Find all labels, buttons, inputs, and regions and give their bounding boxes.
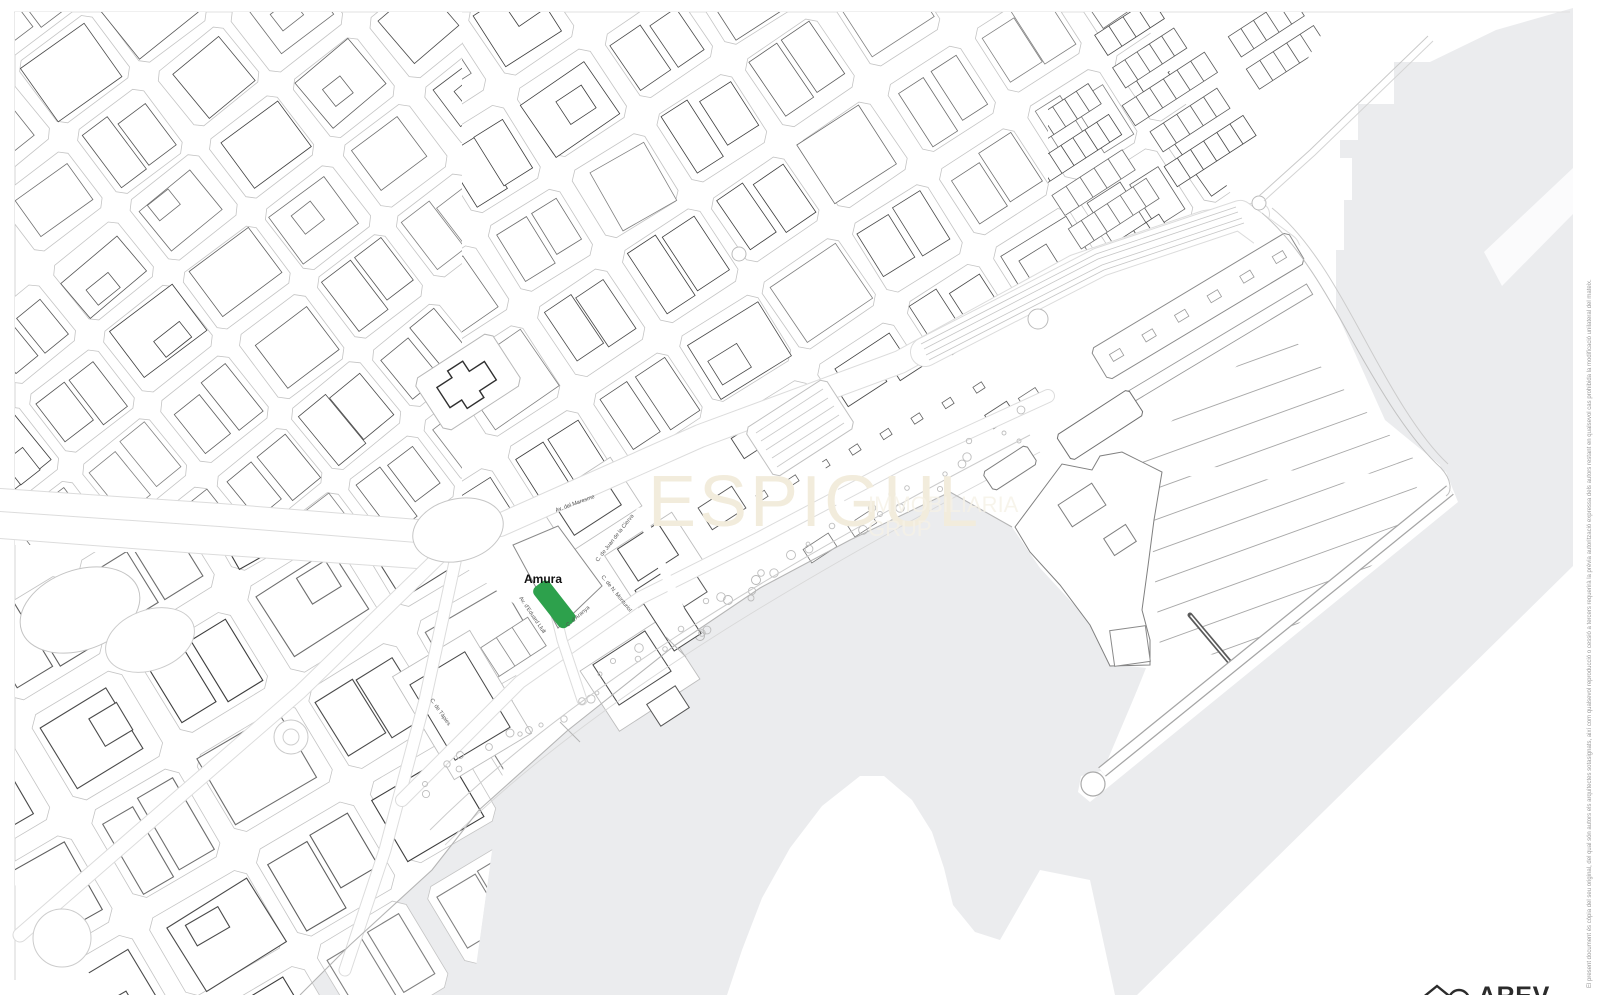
svg-text:AREV: AREV (1478, 982, 1550, 995)
svg-text:GRUP: GRUP (868, 516, 932, 541)
svg-text:IMMOBILIARIA: IMMOBILIARIA (868, 492, 1019, 517)
svg-text:El present document és còpia d: El present document és còpia del seu ori… (1587, 279, 1593, 988)
svg-text:Amura: Amura (524, 572, 562, 586)
